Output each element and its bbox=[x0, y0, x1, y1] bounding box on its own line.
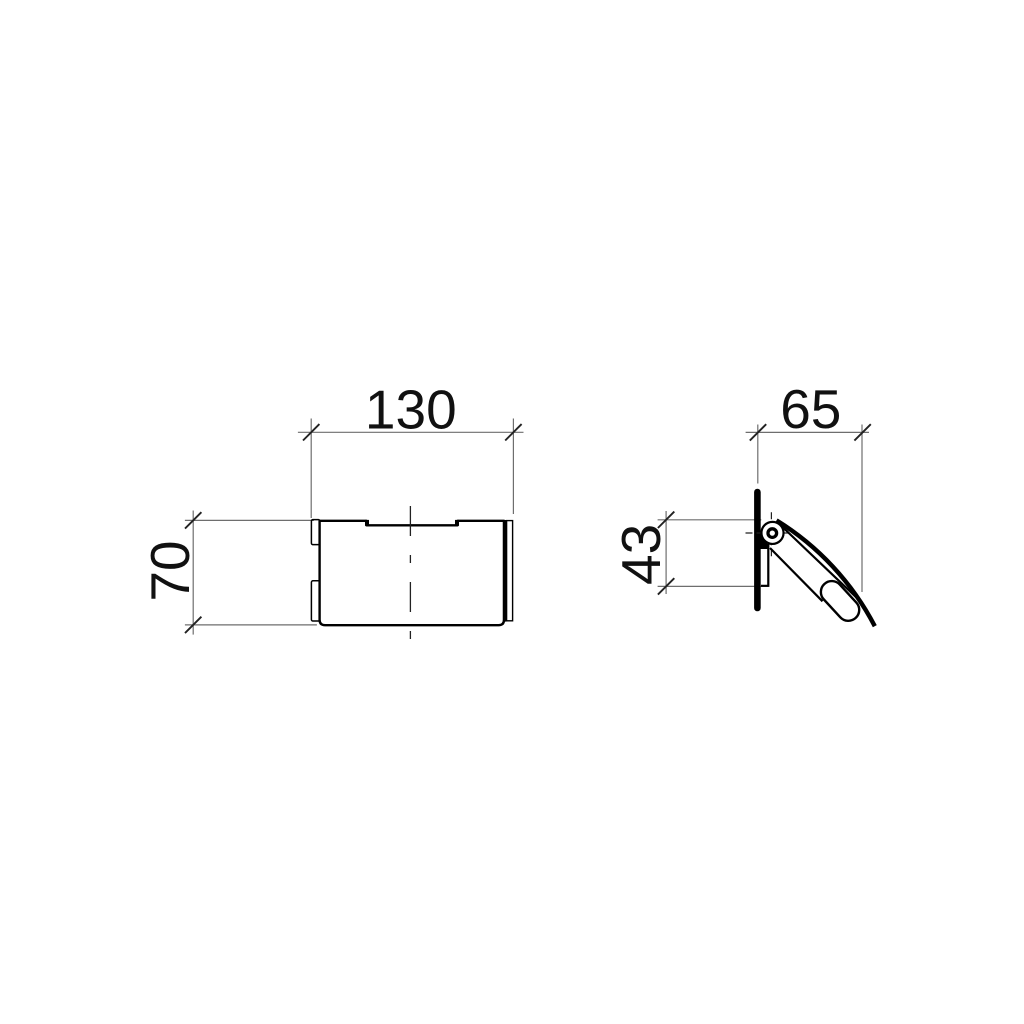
svg-text:70: 70 bbox=[139, 540, 201, 601]
svg-text:65: 65 bbox=[780, 378, 841, 440]
svg-text:130: 130 bbox=[365, 379, 457, 441]
svg-text:43: 43 bbox=[610, 524, 672, 585]
